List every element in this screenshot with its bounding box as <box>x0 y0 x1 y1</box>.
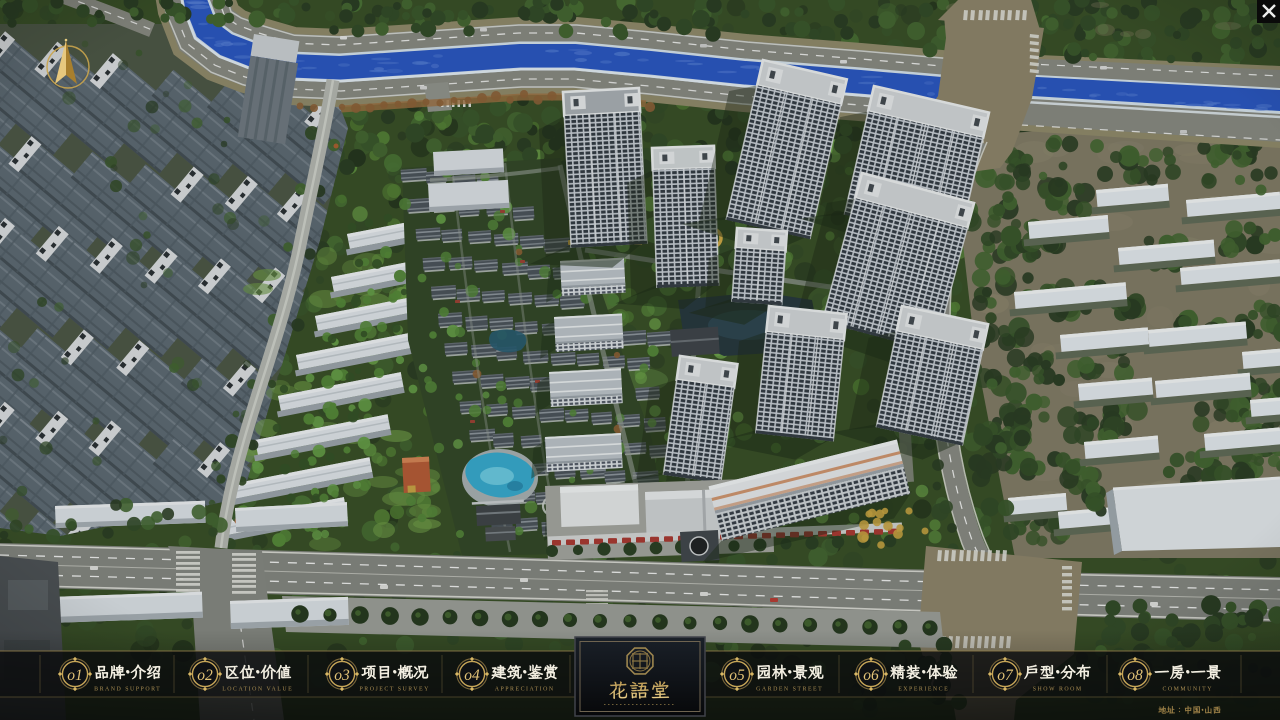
svg-text:o7: o7 <box>997 667 1014 684</box>
svg-text:o2: o2 <box>197 667 213 684</box>
svg-text:o6: o6 <box>863 667 879 684</box>
svg-text:COMMUNITY: COMMUNITY <box>1162 687 1212 693</box>
svg-text:SHOW ROOM: SHOW ROOM <box>1033 687 1083 693</box>
svg-text:o3: o3 <box>334 667 350 684</box>
svg-text:APPRECIATION: APPRECIATION <box>495 687 555 693</box>
svg-text:BRAND SUPPORT: BRAND SUPPORT <box>94 687 161 693</box>
svg-text:LOCATION VALUE: LOCATION VALUE <box>222 687 293 693</box>
svg-text:o5: o5 <box>729 667 745 684</box>
svg-text:o4: o4 <box>464 667 480 684</box>
svg-text:o8: o8 <box>1127 667 1143 684</box>
svg-text:PROJECT SURVEY: PROJECT SURVEY <box>360 687 430 693</box>
svg-text:GARDEN STREET: GARDEN STREET <box>756 687 823 693</box>
svg-text:o1: o1 <box>67 667 83 684</box>
svg-text:EXPERIENCE: EXPERIENCE <box>898 687 949 693</box>
